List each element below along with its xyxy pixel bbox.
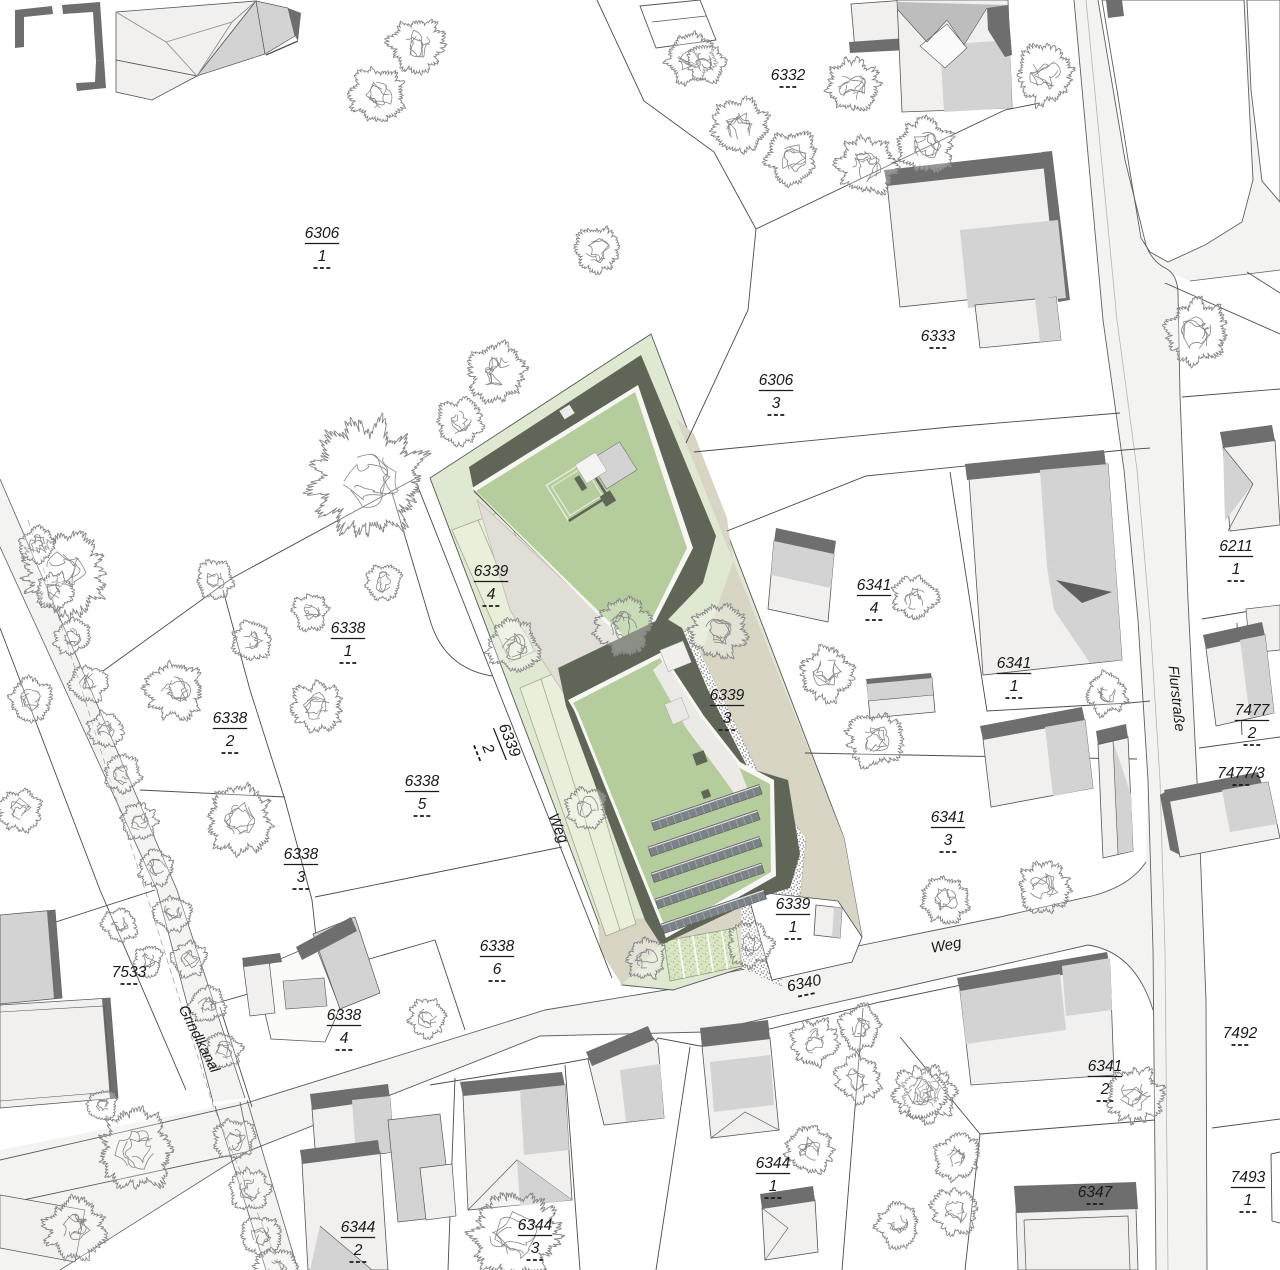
svg-text:3: 3 <box>944 832 953 849</box>
svg-text:6332: 6332 <box>771 67 806 84</box>
svg-text:6306: 6306 <box>759 372 794 389</box>
svg-text:6341: 6341 <box>1088 1058 1122 1075</box>
svg-text:7493: 7493 <box>1231 1169 1266 1186</box>
svg-text:6341: 6341 <box>997 655 1031 672</box>
svg-text:7477: 7477 <box>1235 702 1271 719</box>
svg-text:6338: 6338 <box>405 773 440 790</box>
svg-text:1: 1 <box>769 1178 778 1195</box>
svg-text:1: 1 <box>789 919 798 936</box>
svg-text:4: 4 <box>870 600 879 617</box>
svg-text:2: 2 <box>225 733 235 750</box>
svg-text:7492: 7492 <box>1223 1025 1258 1042</box>
svg-text:6339: 6339 <box>474 563 509 580</box>
svg-text:7477/3: 7477/3 <box>1217 765 1265 782</box>
svg-text:2: 2 <box>1247 725 1257 742</box>
svg-text:6344: 6344 <box>341 1219 376 1236</box>
svg-text:1: 1 <box>1244 1192 1253 1209</box>
svg-text:6344: 6344 <box>518 1217 553 1234</box>
svg-text:6338: 6338 <box>331 620 366 637</box>
svg-text:6341: 6341 <box>931 809 965 826</box>
svg-text:6338: 6338 <box>213 710 248 727</box>
svg-text:7533: 7533 <box>112 964 147 981</box>
svg-text:1: 1 <box>1010 678 1019 695</box>
svg-text:3: 3 <box>297 869 306 886</box>
svg-text:1: 1 <box>1232 561 1241 578</box>
svg-text:4: 4 <box>340 1030 349 1047</box>
svg-text:6344: 6344 <box>756 1155 791 1172</box>
svg-text:6339: 6339 <box>776 896 811 913</box>
svg-text:3: 3 <box>531 1240 540 1257</box>
svg-text:6338: 6338 <box>480 938 515 955</box>
svg-text:6211: 6211 <box>1219 538 1252 555</box>
svg-text:6341: 6341 <box>857 577 891 594</box>
svg-text:2: 2 <box>353 1242 363 1259</box>
svg-text:3: 3 <box>772 395 781 412</box>
svg-text:1: 1 <box>344 643 353 660</box>
svg-text:6333: 6333 <box>921 328 956 345</box>
svg-text:5: 5 <box>418 796 427 813</box>
svg-text:4: 4 <box>487 586 496 603</box>
svg-text:6306: 6306 <box>305 225 340 242</box>
svg-text:6338: 6338 <box>327 1007 362 1024</box>
svg-text:6339: 6339 <box>710 687 745 704</box>
svg-text:6: 6 <box>493 961 502 978</box>
svg-text:3: 3 <box>723 710 732 727</box>
svg-text:2: 2 <box>1100 1081 1110 1098</box>
svg-text:1: 1 <box>318 248 327 265</box>
svg-text:6338: 6338 <box>284 846 319 863</box>
svg-text:6347: 6347 <box>1078 1184 1114 1201</box>
